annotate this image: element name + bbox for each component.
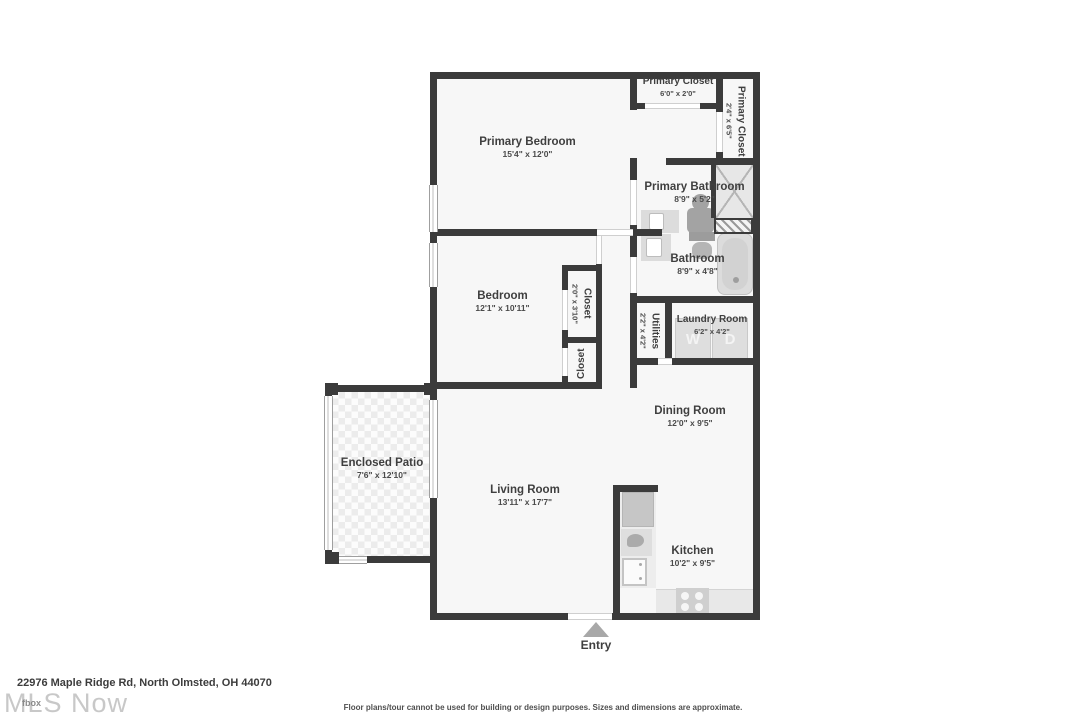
fridge-icon — [622, 492, 654, 527]
room-label-primary-closet-vertical: 2'4" x 6'5" Primary Closet — [719, 80, 752, 162]
wall — [630, 358, 658, 365]
wall-post — [424, 383, 437, 395]
room-name: Primary Bedroom — [450, 135, 605, 149]
door-opening — [658, 358, 672, 365]
wall — [430, 72, 437, 620]
sliding-door-window — [429, 400, 438, 498]
sink-icon — [649, 213, 664, 230]
door-opening — [630, 180, 637, 225]
room-label-laundry-room: Laundry Room 6'2" x 4'2" — [666, 314, 758, 336]
room-label-closet-2: Closet — [567, 345, 596, 383]
room-name: Primary Bathroom — [637, 180, 752, 194]
wall — [430, 382, 602, 389]
wall — [613, 485, 620, 620]
toilet-icon — [687, 208, 714, 233]
room-name: Primary Closet — [637, 76, 719, 89]
toilet-icon — [689, 232, 715, 241]
closet-door-opening — [645, 103, 700, 109]
wall — [637, 296, 760, 303]
room-label-primary-closet: Primary Closet 6'0" x 2'0" — [637, 76, 719, 98]
room-name: Utilities — [650, 313, 661, 349]
burner — [695, 592, 703, 600]
room-name: Laundry Room — [666, 314, 758, 327]
room-label-living-room: Living Room 13'11" x 17'7" — [455, 483, 595, 508]
wall — [430, 613, 568, 620]
room-label-enclosed-patio: Enclosed Patio 7'6" x 12'10" — [333, 456, 431, 481]
wall — [672, 358, 760, 365]
door-opening — [596, 236, 602, 264]
entry-door-opening — [568, 613, 612, 620]
room-label-bedroom: Bedroom 12'1" x 10'11" — [440, 289, 565, 314]
wall — [637, 229, 662, 236]
room-dims: 6'2" x 4'2" — [666, 327, 758, 337]
window — [339, 556, 367, 564]
room-label-closet-1: 2'0" x 3'10" Closet — [567, 272, 596, 335]
burner — [695, 603, 703, 611]
room-label-dining-room: Dining Room 12'0" x 9'5" — [625, 404, 755, 429]
room-name: Kitchen — [640, 544, 745, 558]
window — [429, 185, 438, 232]
wall — [612, 613, 760, 620]
room-dims: 15'4" x 12'0" — [450, 149, 605, 160]
door-opening — [630, 257, 637, 293]
wall-post — [325, 383, 338, 395]
wall — [630, 158, 637, 180]
wall — [325, 385, 436, 392]
room-dims: 13'11" x 17'7" — [455, 497, 595, 508]
wall — [753, 72, 760, 620]
wall — [613, 485, 658, 492]
room-label-utilities: 2'2" x 4'2" Utilities — [635, 305, 664, 357]
window — [324, 396, 333, 550]
room-name: Primary Closet — [736, 86, 747, 157]
watermark-overlay-text: fbox — [22, 698, 41, 708]
room-dims: 8'9" x 4'8" — [650, 266, 745, 277]
room-label-primary-bedroom: Primary Bedroom 15'4" x 12'0" — [450, 135, 605, 160]
room-name: Closet — [582, 288, 593, 319]
room-dims: 12'0" x 9'5" — [625, 418, 755, 429]
room-dims: 7'6" x 12'10" — [333, 470, 431, 481]
half-wall-hatch — [714, 218, 753, 234]
disclaimer-text: Floor plans/tour cannot be used for buil… — [0, 703, 1086, 712]
window — [429, 243, 438, 287]
wall — [596, 264, 602, 389]
entry-arrow-icon — [583, 622, 609, 637]
burner — [681, 603, 689, 611]
room-dims: 2'0" x 3'10" — [571, 284, 580, 324]
room-name: Closet — [576, 349, 587, 380]
wall — [430, 229, 597, 236]
door-opening — [597, 229, 633, 236]
room-label-bathroom: Bathroom 8'9" x 4'8" — [650, 252, 745, 277]
wall — [562, 337, 602, 343]
room-name: Living Room — [455, 483, 595, 497]
wall-post — [325, 552, 339, 564]
cabinet-knob — [639, 577, 642, 580]
room-dims: 2'4" x 6'5" — [725, 103, 734, 139]
room-label-primary-bathroom: Primary Bathroom 8'9" x 5'2" — [637, 180, 752, 205]
burner — [681, 592, 689, 600]
room-dims: 8'9" x 5'2" — [637, 194, 752, 205]
wall — [367, 556, 436, 563]
wall — [562, 265, 602, 271]
room-label-kitchen: Kitchen 10'2" x 9'5" — [640, 544, 745, 569]
room-name: Dining Room — [625, 404, 755, 418]
room-name: Bathroom — [650, 252, 745, 266]
room-name: Bedroom — [440, 289, 565, 303]
entry-label: Entry — [568, 638, 624, 652]
room-dims: 6'0" x 2'0" — [637, 89, 719, 99]
room-name: Enclosed Patio — [333, 456, 431, 470]
room-dims: 10'2" x 9'5" — [640, 558, 745, 569]
floor-plan-page: { "colors":{"wall":"#3b3b3b","floor":"#f… — [0, 0, 1086, 724]
room-dims: 12'1" x 10'11" — [440, 303, 565, 314]
wall — [630, 103, 645, 109]
room-dims: 2'2" x 4'2" — [639, 313, 648, 349]
bathtub-drain — [733, 277, 739, 283]
